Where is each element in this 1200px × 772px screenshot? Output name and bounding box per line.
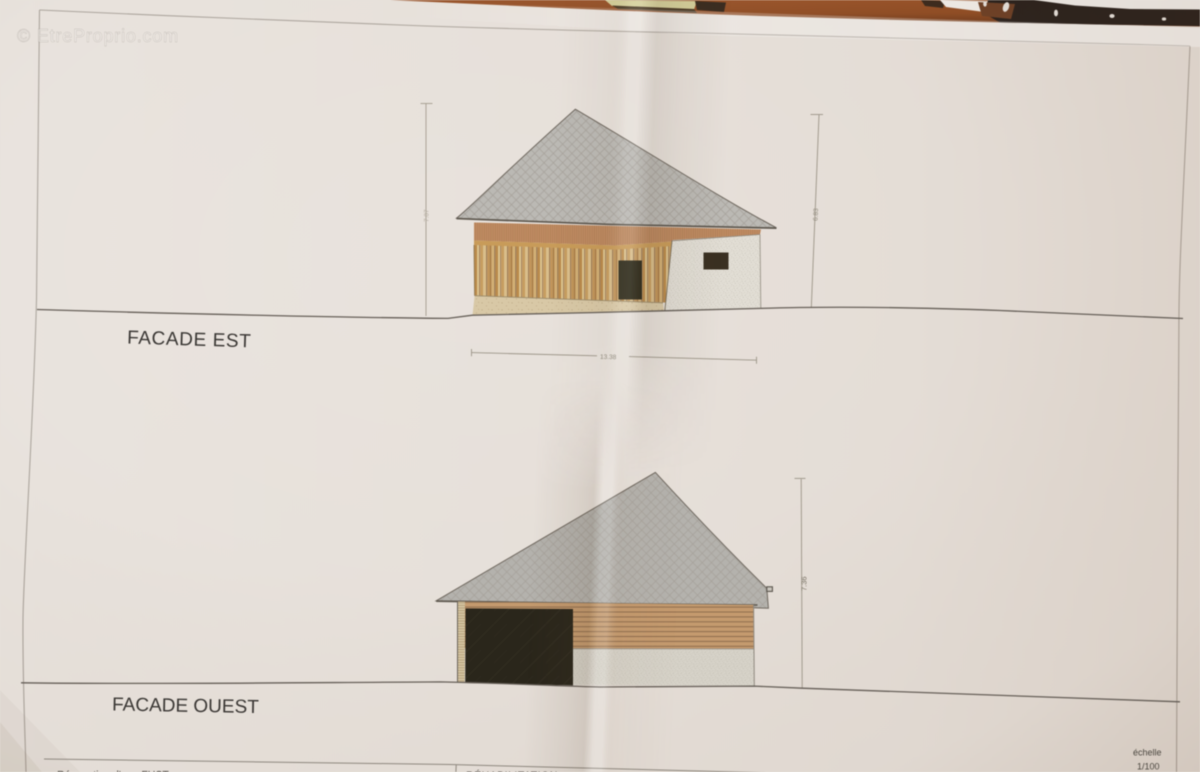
svg-text:FACADE EST: FACADE EST (127, 328, 252, 353)
svg-text:6.83: 6.83 (813, 208, 820, 221)
svg-text:7.07: 7.07 (424, 209, 431, 222)
svg-text:FACADE OUEST: FACADE OUEST (112, 695, 259, 719)
svg-text:1/100: 1/100 (1137, 762, 1160, 772)
svg-text:© EtreProprio.com: © EtreProprio.com (17, 26, 179, 46)
svg-text:échelle: échelle (1133, 748, 1162, 758)
svg-text:7.36: 7.36 (800, 576, 809, 591)
